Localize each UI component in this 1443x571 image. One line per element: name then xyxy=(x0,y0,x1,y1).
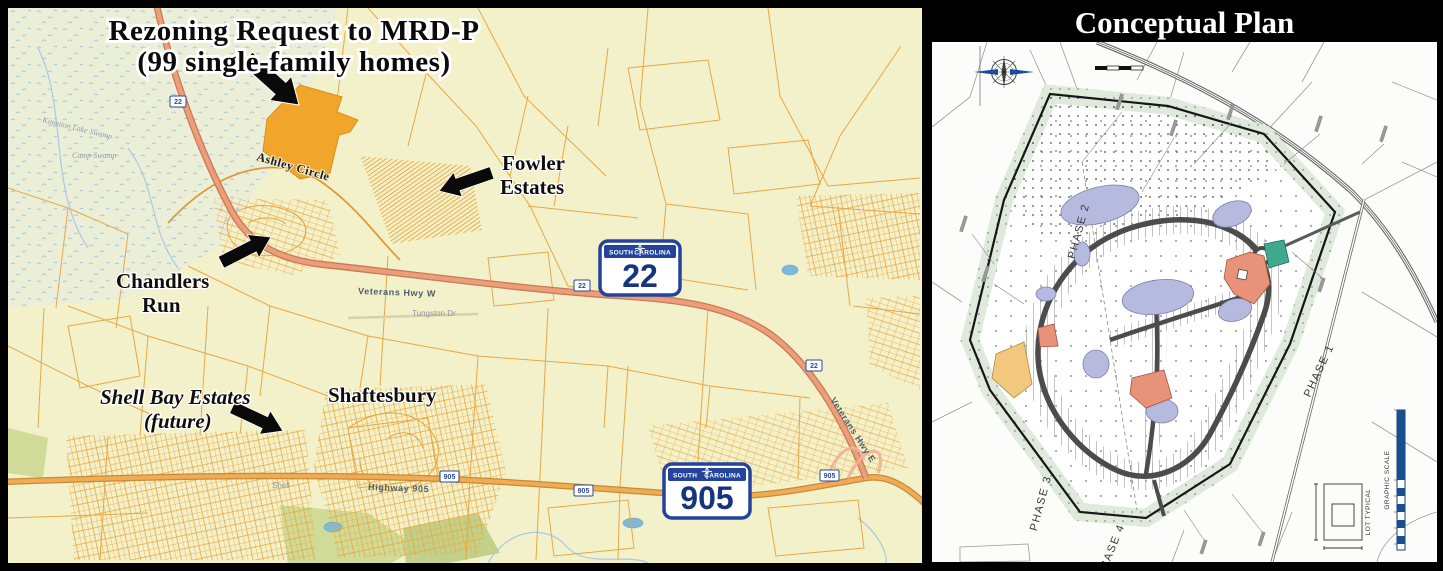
shield-state-right: CAROLINA xyxy=(704,473,741,480)
lot-typical-label: LOT TYPICAL xyxy=(1365,489,1372,536)
shield-state-left: SOUTH xyxy=(609,250,633,257)
graphic-scale-label: GRAPHIC SCALE xyxy=(1384,450,1391,509)
route-marker-22-b: 22 xyxy=(574,280,590,291)
shell-bay-label-1: Shell Bay Estates xyxy=(100,385,251,409)
route-marker-905-b: 905 xyxy=(574,485,593,496)
fowler-estates-label-2: Estates xyxy=(500,175,564,199)
map-title-line-1: Rezoning Request to MRD-P xyxy=(109,15,480,47)
vicinity-map: Veterans Hwy W Veterans Hwy E Tungston D… xyxy=(8,8,922,563)
sc-905-shield: SOUTH CAROLINA 905 xyxy=(664,464,750,518)
conceptual-plan: PHASE 2 PHASE 1 PHASE 3 PHASE 4 LOT TYPI… xyxy=(932,42,1437,562)
clubhouse-footprint xyxy=(1237,269,1248,280)
svg-text:905: 905 xyxy=(824,473,836,480)
conceptual-plan-title: Conceptual Plan xyxy=(932,6,1437,40)
shell-bay-label-2: (future) xyxy=(144,409,212,433)
highway-905-label: Highway 905 xyxy=(368,482,429,494)
shell-label: Shell xyxy=(272,481,290,490)
amenity-salmon-west xyxy=(1038,324,1058,347)
route-marker-22-c: 22 xyxy=(806,360,822,371)
shield-number: 905 xyxy=(680,480,733,516)
shaftesbury-label: Shaftesbury xyxy=(328,383,437,407)
chandlers-run-label-2: Run xyxy=(142,293,181,317)
svg-text:22: 22 xyxy=(174,99,182,106)
route-marker-905-a: 905 xyxy=(440,471,459,482)
sc-22-shield: SOUTH CAROLINA 22 xyxy=(600,241,680,295)
shield-number: 22 xyxy=(622,258,658,294)
shaftesbury-subdivision xyxy=(314,384,506,558)
camp-swamp-label: Camp Swamp xyxy=(72,151,116,160)
conceptual-plan-panel: PHASE 2 PHASE 1 PHASE 3 PHASE 4 LOT TYPI… xyxy=(932,42,1437,562)
map-title-line-2: (99 single-family homes) xyxy=(137,46,450,78)
svg-text:905: 905 xyxy=(578,488,590,495)
tungston-dr-label: Tungston Dr xyxy=(412,309,456,318)
fowler-estates-label-1: Fowler xyxy=(502,151,565,175)
chandlers-run-label-1: Chandlers xyxy=(116,269,209,293)
slide: Veterans Hwy W Veterans Hwy E Tungston D… xyxy=(0,0,1443,571)
route-marker-905-c: 905 xyxy=(820,470,839,481)
vicinity-map-panel: Veterans Hwy W Veterans Hwy E Tungston D… xyxy=(8,8,922,563)
svg-text:22: 22 xyxy=(810,363,818,370)
shield-state-left: SOUTH xyxy=(673,473,697,480)
svg-text:22: 22 xyxy=(578,283,586,290)
route-marker-22-a: 22 xyxy=(170,96,186,107)
svg-text:905: 905 xyxy=(444,474,456,481)
